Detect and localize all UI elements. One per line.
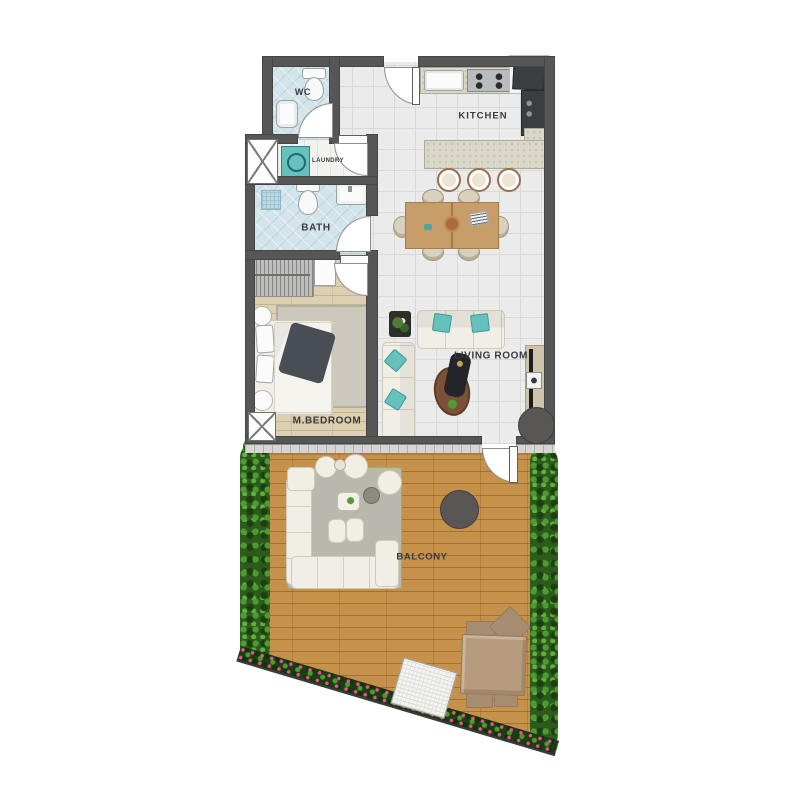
wall bbox=[418, 56, 555, 67]
fire-pit bbox=[440, 490, 479, 529]
wall bbox=[245, 250, 340, 260]
fruit-bowl bbox=[444, 216, 460, 232]
sofa-main bbox=[417, 310, 505, 349]
hedge-left bbox=[240, 444, 270, 662]
room-label-balcony: BALCONY bbox=[396, 552, 447, 563]
nightstand bbox=[252, 390, 273, 411]
sofa-pillow bbox=[432, 313, 452, 333]
outdoor-sofa-corner bbox=[287, 467, 315, 491]
outdoor-tray-table bbox=[337, 492, 360, 511]
service-shaft bbox=[248, 412, 276, 441]
window-sill bbox=[516, 444, 555, 453]
room-label-wc: WC bbox=[295, 87, 311, 97]
bed-pillow bbox=[255, 324, 275, 353]
hedge-right bbox=[530, 448, 558, 748]
stove bbox=[467, 69, 512, 92]
media-box bbox=[526, 372, 542, 389]
outdoor-side-table-small bbox=[334, 459, 346, 471]
outdoor-chaise bbox=[375, 540, 399, 587]
bed-pillow bbox=[255, 354, 275, 383]
bar-stool bbox=[497, 168, 521, 192]
outdoor-gray-table bbox=[363, 487, 380, 504]
room-label-bedroom: M.BEDROOM bbox=[293, 416, 362, 427]
room-label-laundry: LAUNDRY bbox=[312, 158, 344, 164]
bath-sink-faucet bbox=[348, 186, 352, 192]
outdoor-stool bbox=[343, 454, 368, 479]
table-decor bbox=[424, 224, 432, 230]
wall bbox=[544, 56, 555, 448]
toilet-bowl bbox=[298, 190, 318, 215]
window-sill bbox=[245, 444, 482, 453]
shower-drain bbox=[261, 190, 281, 210]
wall bbox=[262, 56, 384, 67]
balcony-door-leaf bbox=[509, 446, 518, 483]
wardrobe-rail bbox=[254, 274, 310, 276]
washing-machine-door bbox=[287, 153, 306, 172]
room-label-bath: BATH bbox=[301, 223, 330, 234]
wall bbox=[262, 56, 273, 144]
island-counter bbox=[424, 140, 547, 169]
room-label-living: LIVING ROOM bbox=[454, 351, 528, 362]
outdoor-dining-table bbox=[460, 634, 527, 696]
kitchen-sink bbox=[424, 70, 464, 91]
floor-plan: WC KITCHEN LAUNDRY BATH M.BEDROOM LIVING… bbox=[0, 0, 800, 800]
nightstand bbox=[252, 306, 272, 326]
closet-box bbox=[314, 257, 336, 286]
side-table-round bbox=[518, 407, 555, 444]
wall bbox=[245, 436, 482, 444]
wardrobe bbox=[252, 257, 314, 297]
wc-sink bbox=[276, 100, 298, 128]
sofa-pillow bbox=[470, 313, 490, 333]
room-label-kitchen: KITCHEN bbox=[458, 111, 507, 122]
entrance-door-leaf bbox=[412, 67, 420, 105]
service-shaft bbox=[247, 139, 278, 184]
bar-stool bbox=[437, 168, 461, 192]
outdoor-ottoman bbox=[346, 518, 364, 542]
outdoor-ottoman bbox=[328, 519, 346, 543]
plant-pot bbox=[389, 311, 411, 337]
outdoor-pouf-round bbox=[377, 470, 402, 495]
